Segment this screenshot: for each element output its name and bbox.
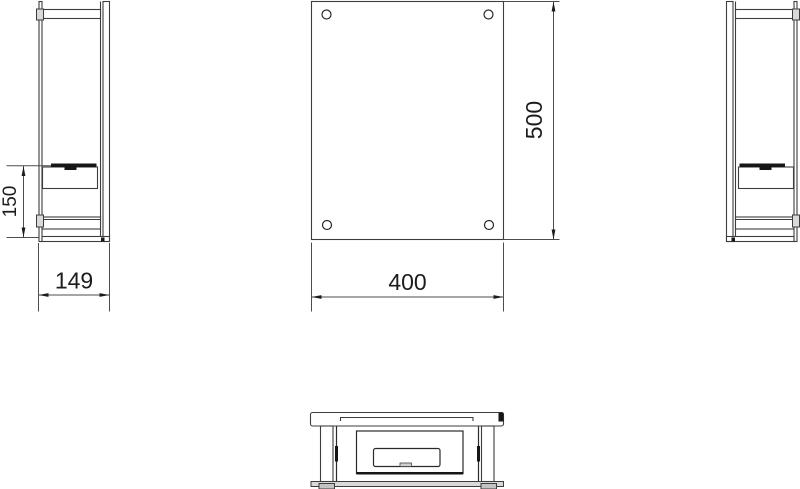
right-side-view xyxy=(727,2,800,242)
top-clamp xyxy=(793,9,800,20)
left-shelf-edge xyxy=(335,446,338,462)
dimension-burner-height-label: 150 xyxy=(0,186,21,218)
arrowhead-left-icon xyxy=(312,295,322,299)
right-shelf-edge xyxy=(477,446,480,462)
front-rail xyxy=(311,413,504,427)
bottom-arm xyxy=(42,217,101,229)
technical-drawing-canvas: 150 149 500 400 xyxy=(0,0,800,489)
left-leg xyxy=(321,426,334,482)
firebox-opening xyxy=(357,431,464,474)
arrowhead-right-icon xyxy=(494,295,504,299)
bottom-arm xyxy=(736,217,795,229)
burner-box xyxy=(43,167,98,189)
left-foot xyxy=(319,484,335,489)
top-arm xyxy=(42,10,101,19)
right-leg xyxy=(482,426,495,482)
wall-frame xyxy=(727,2,734,242)
arrowhead-down-icon xyxy=(22,228,26,238)
burner-tab xyxy=(65,167,77,170)
front-panel xyxy=(312,2,504,240)
arrowhead-up-icon xyxy=(552,2,556,12)
plan-view xyxy=(311,413,504,489)
dimension-width: 400 xyxy=(312,243,504,312)
dimension-height: 500 xyxy=(504,2,560,240)
front-rail-end-cap xyxy=(499,413,504,422)
base-corner xyxy=(101,238,105,242)
right-foot xyxy=(481,484,497,489)
front-panel-edge xyxy=(794,2,797,242)
burner-top-plate xyxy=(51,164,97,168)
bottom-clamp xyxy=(793,215,800,227)
arrowhead-left-icon xyxy=(39,293,49,297)
top-arm xyxy=(736,10,795,19)
base-plate xyxy=(42,237,110,242)
dimension-height-label: 500 xyxy=(521,101,547,139)
bottom-clamp xyxy=(37,215,44,227)
left-side-view xyxy=(37,2,110,242)
dimension-depth: 149 xyxy=(39,243,110,312)
burner-tab xyxy=(760,167,772,170)
back-plate xyxy=(311,482,504,487)
base-plate xyxy=(727,237,795,242)
burner-notch xyxy=(400,463,412,467)
arrowhead-down-icon xyxy=(552,230,556,240)
arrowhead-right-icon xyxy=(100,293,110,297)
base-corner xyxy=(732,238,736,242)
dimension-depth-label: 149 xyxy=(55,268,93,294)
wall-frame xyxy=(103,2,110,242)
firebox-back-edge xyxy=(357,472,464,475)
front-panel-edge xyxy=(39,2,42,242)
arrowhead-up-icon xyxy=(22,166,26,176)
dimension-width-label: 400 xyxy=(388,269,426,295)
burner-box xyxy=(739,167,794,189)
front-view xyxy=(312,2,504,240)
top-clamp xyxy=(37,9,44,20)
burner-top-plate xyxy=(740,164,786,168)
